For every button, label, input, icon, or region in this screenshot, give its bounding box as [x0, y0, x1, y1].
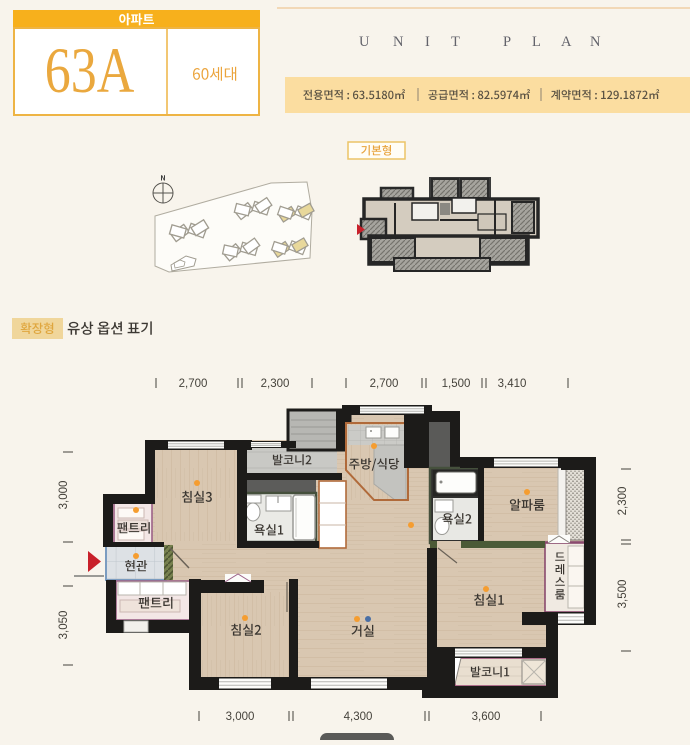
svg-text:3,050: 3,050	[58, 611, 70, 640]
svg-text:4,300: 4,300	[344, 711, 373, 723]
svg-text:3,500: 3,500	[617, 580, 629, 609]
svg-text:A: A	[561, 34, 572, 50]
svg-text:3,410: 3,410	[498, 378, 527, 390]
svg-text:N: N	[393, 34, 404, 50]
svg-text:2,300: 2,300	[617, 487, 629, 516]
svg-text:2,700: 2,700	[179, 378, 208, 390]
svg-text:T: T	[451, 34, 460, 50]
svg-text:N: N	[590, 34, 601, 50]
svg-text:3,600: 3,600	[472, 711, 501, 723]
svg-text:2,300: 2,300	[261, 378, 290, 390]
svg-text:63A: 63A	[45, 35, 135, 107]
svg-text:P: P	[503, 34, 511, 50]
svg-text:I: I	[425, 34, 430, 50]
svg-text:1,500: 1,500	[442, 378, 471, 390]
svg-text:3,000: 3,000	[58, 481, 70, 510]
svg-text:2,700: 2,700	[370, 378, 399, 390]
svg-text:3,000: 3,000	[226, 711, 255, 723]
svg-text:U: U	[359, 34, 370, 50]
svg-text:L: L	[532, 34, 541, 50]
